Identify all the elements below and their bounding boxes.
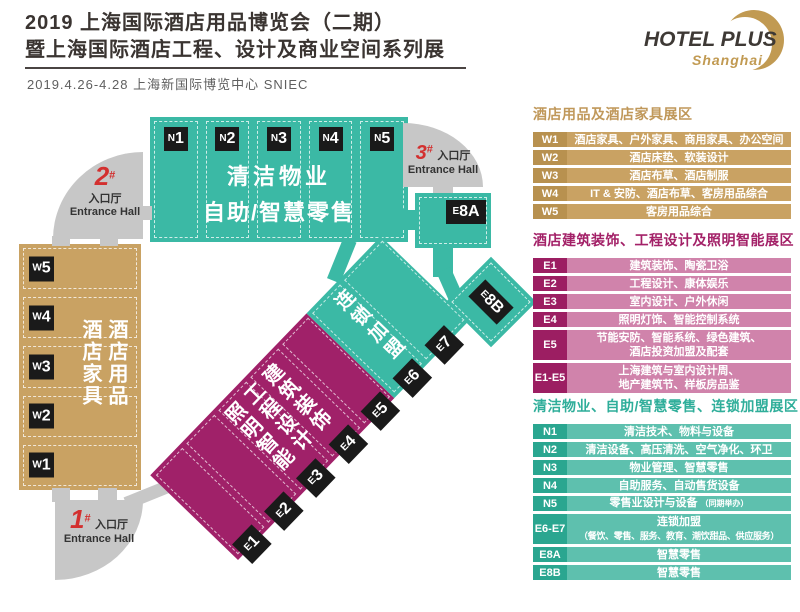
- legend-row-w1: W1酒店家具、户外家具、商用家具、办公空间: [533, 132, 791, 147]
- legend-row-e4: E4照明灯饰、智能控制系统: [533, 312, 791, 327]
- hall-cell-n4: N4: [309, 121, 353, 238]
- logo-wordmark: HOTEL PLUS: [644, 28, 777, 52]
- legend-title-w: 酒店用品及酒店家具展区: [533, 104, 791, 124]
- legend-row-e8b: E8B智慧零售: [533, 565, 791, 580]
- legend-title-e: 酒店建筑装饰、工程设计及照明智能展区: [533, 230, 791, 250]
- legend-row-w2: W2酒店床垫、软装设计: [533, 150, 791, 165]
- legend-row-e8a: E8A智慧零售: [533, 547, 791, 562]
- date-venue: 2019.4.26-4.28 上海新国际博览中心 SNIEC: [27, 74, 308, 93]
- legend-row-e1: E1建筑装饰、陶瓷卫浴: [533, 258, 791, 273]
- hall-label-n4: N4: [319, 127, 343, 151]
- legend-row-e6e7: E6-E7连锁加盟（餐饮、零售、服务、教育、潮饮甜品、供应服务）: [533, 514, 791, 544]
- hall-label-n3: N3: [267, 127, 291, 151]
- entrance-hall-1: 1# 入口厅 Entrance Hall: [55, 500, 143, 580]
- hall-block-e8a: E8A: [415, 193, 491, 248]
- title-line1: 2019 上海国际酒店用品博览会（二期）: [25, 10, 505, 37]
- legend-row-e5: E5节能安防、智能系统、绿色建筑、酒店投资加盟及配套: [533, 330, 791, 360]
- entrance-hall-2: 2# 入口厅 Entrance Hall: [53, 152, 143, 239]
- legend-title-n: 清洁物业、自助/智慧零售、连锁加盟展区: [533, 396, 791, 416]
- hall-cell-n3: N3: [257, 121, 301, 238]
- hall-label-n2: N2: [215, 127, 239, 151]
- hall-strip-e: 建筑装饰 工程设计 照明智能 连锁加盟 E1 E2 E3 E4 E5 E6 E7: [150, 236, 468, 560]
- legend-row-n1: N1清洁技术、物料与设备: [533, 424, 791, 439]
- title-line2: 暨上海国际酒店工程、设计及商业空间系列展: [25, 37, 505, 64]
- hall-label-n5: N5: [370, 127, 394, 151]
- logo-subtitle: Shanghai: [692, 52, 763, 68]
- hall-cell-n2: N2: [206, 121, 250, 238]
- hall-label-n1: N1: [164, 127, 188, 151]
- hall-label-w1: W1: [29, 453, 54, 478]
- legend-row-w4: W4IT & 安防、酒店布草、客房用品综合: [533, 186, 791, 201]
- legend-section-w: 酒店用品及酒店家具展区 W1酒店家具、户外家具、商用家具、办公空间 W2酒店床垫…: [533, 104, 791, 222]
- hall-label-w3: W3: [29, 355, 54, 380]
- legend-row-e1e5: E1-E5上海建筑与室内设计周、地产建筑节、样板房品鉴: [533, 363, 791, 393]
- legend-row-n2: N2清洁设备、高压清洗、空气净化、环卫: [533, 442, 791, 457]
- legend-row-e3: E3室内设计、户外休闲: [533, 294, 791, 309]
- legend-row-e2: E2工程设计、康体娱乐: [533, 276, 791, 291]
- legend-row-n4: N4自助服务、自动售货设备: [533, 478, 791, 493]
- legend-row-n5: N5零售业设计与设备 （同期举办）: [533, 496, 791, 511]
- page-title: 2019 上海国际酒店用品博览会（二期） 暨上海国际酒店工程、设计及商业空间系列…: [25, 10, 505, 64]
- w-block-caption: 酒店用品 酒店家具: [77, 244, 129, 490]
- legend-row-w3: W3酒店布草、酒店制服: [533, 168, 791, 183]
- hall-label-w5: W5: [29, 256, 54, 281]
- legend-row-w5: W5客房用品综合: [533, 204, 791, 219]
- hotel-plus-logo: HOTEL PLUS Shanghai: [640, 2, 795, 82]
- hall-label-w2: W2: [29, 404, 54, 429]
- hall-block-n: N1 N2 N3 N4 N5: [150, 117, 408, 242]
- hall-label-w4: W4: [29, 305, 54, 330]
- hall-block-e8b: E8B: [446, 257, 537, 348]
- hall-label-e8a: E8A: [446, 200, 486, 224]
- expo-floorplan-page: 2019 上海国际酒店用品博览会（二期） 暨上海国际酒店工程、设计及商业空间系列…: [0, 0, 800, 612]
- hall-cell-n1: N1: [154, 121, 198, 238]
- connector-teal: [390, 210, 417, 230]
- title-divider: [25, 67, 466, 69]
- legend-row-n3: N3物业管理、智慧零售: [533, 460, 791, 475]
- legend-section-n: 清洁物业、自助/智慧零售、连锁加盟展区 N1清洁技术、物料与设备 N2清洁设备、…: [533, 396, 791, 583]
- entrance-hall-3: 3# 入口厅 Entrance Hall: [403, 123, 483, 187]
- legend-section-e: 酒店建筑装饰、工程设计及照明智能展区 E1建筑装饰、陶瓷卫浴 E2工程设计、康体…: [533, 230, 791, 396]
